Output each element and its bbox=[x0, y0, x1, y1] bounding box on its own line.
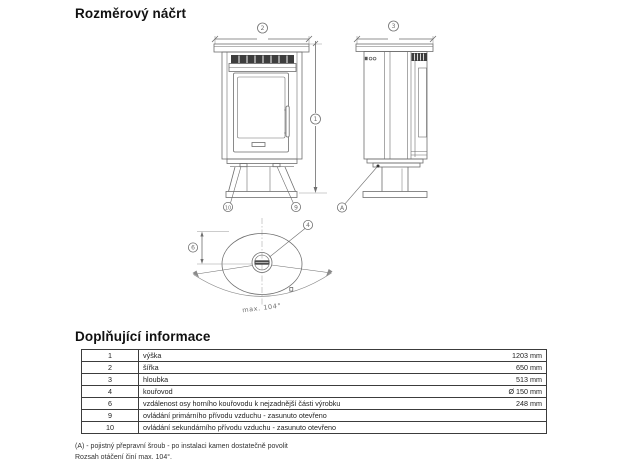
callout-width-label: 2 bbox=[261, 25, 265, 32]
info-table: 1 výška 1203 mm 2 šířka 650 mm 3 hloubka… bbox=[81, 349, 547, 434]
row-num: 3 bbox=[82, 374, 139, 386]
table-row: 9 ovládání primárního přívodu vzduchu - … bbox=[82, 410, 547, 422]
footnotes: (A) - pojistný přepravní šroub - po inst… bbox=[75, 441, 557, 460]
dimensional-drawing: 2 1 3 10 9 A 4 6 max. 104° bbox=[0, 0, 624, 326]
callout-flue-label: 4 bbox=[306, 222, 310, 229]
callout-primary-air-label: 9 bbox=[294, 204, 298, 211]
row-value bbox=[460, 410, 547, 422]
row-label: šířka bbox=[139, 362, 461, 374]
callout-offset-label: 6 bbox=[191, 245, 195, 252]
row-value: 1203 mm bbox=[460, 350, 547, 362]
table-row: 4 kouřovod Ø 150 mm bbox=[82, 386, 547, 398]
rotation-range-label: max. 104° bbox=[242, 302, 282, 315]
row-num: 9 bbox=[82, 410, 139, 422]
row-num: 6 bbox=[82, 398, 139, 410]
top-view-drawing bbox=[188, 218, 332, 306]
row-label: hloubka bbox=[139, 374, 461, 386]
row-value: 650 mm bbox=[460, 362, 547, 374]
row-value: 513 mm bbox=[460, 374, 547, 386]
table-row: 2 šířka 650 mm bbox=[82, 362, 547, 374]
table-row: 10 ovládání sekundárního přívodu vzduchu… bbox=[82, 422, 547, 434]
section-title: Doplňující informace bbox=[75, 329, 557, 344]
callout-secondary-air-label: 10 bbox=[225, 205, 231, 211]
row-num: 4 bbox=[82, 386, 139, 398]
row-value: 248 mm bbox=[460, 398, 547, 410]
table-row: 1 výška 1203 mm bbox=[82, 350, 547, 362]
front-view-drawing bbox=[212, 23, 327, 212]
table-row: 6 vzdálenost osy horního kouřovodu k nej… bbox=[82, 398, 547, 410]
footnote-transport-screw: (A) - pojistný přepravní šroub - po inst… bbox=[75, 441, 557, 452]
callout-depth-label: 3 bbox=[392, 23, 396, 30]
row-num: 10 bbox=[82, 422, 139, 434]
row-label: výška bbox=[139, 350, 461, 362]
table-row: 3 hloubka 513 mm bbox=[82, 374, 547, 386]
row-num: 1 bbox=[82, 350, 139, 362]
row-label: ovládání primárního přívodu vzduchu - za… bbox=[139, 410, 461, 422]
footnote-rotation-range: Rozsah otáčení činí max. 104°. bbox=[75, 452, 557, 460]
row-label: ovládání sekundárního přívodu vzduchu - … bbox=[139, 422, 461, 434]
row-value bbox=[460, 422, 547, 434]
info-section: Doplňující informace 1 výška 1203 mm 2 š… bbox=[75, 329, 557, 460]
callout-height-label: 1 bbox=[314, 116, 318, 123]
manual-page: Rozměrový náčrt bbox=[0, 0, 624, 460]
row-label: kouřovod bbox=[139, 386, 461, 398]
row-num: 2 bbox=[82, 362, 139, 374]
side-view-drawing bbox=[337, 21, 436, 212]
row-label: vzdálenost osy horního kouřovodu k nejza… bbox=[139, 398, 461, 410]
row-value: Ø 150 mm bbox=[460, 386, 547, 398]
